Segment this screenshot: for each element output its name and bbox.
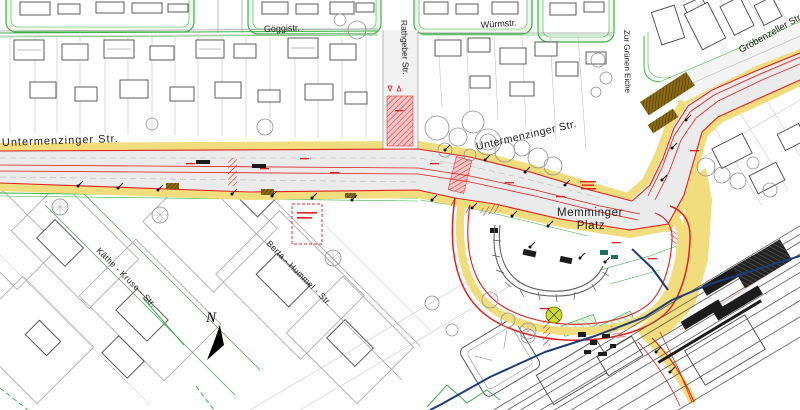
place-label-memminger-line1: Memminger — [557, 207, 623, 219]
street-label-zur-gruenen-eiche: Zur Grünen Eiche — [622, 30, 632, 94]
top-parcels-west — [0, 29, 378, 139]
street-label-goeggistr: Göggistr. — [264, 23, 300, 34]
site-plan-map: Untermenzinger Str. Göggistr. Würmstr. R… — [0, 0, 800, 410]
street-label-rathgeber: Rathgeber Str. — [399, 20, 411, 75]
street-label-untermenzinger-mid: Untermenzinger Str. — [475, 118, 578, 153]
north-label: N — [205, 310, 217, 326]
place-label-memminger-line2: Platz — [577, 220, 606, 232]
site-plan-canvas: Untermenzinger Str. Göggistr. Würmstr. R… — [0, 0, 800, 410]
